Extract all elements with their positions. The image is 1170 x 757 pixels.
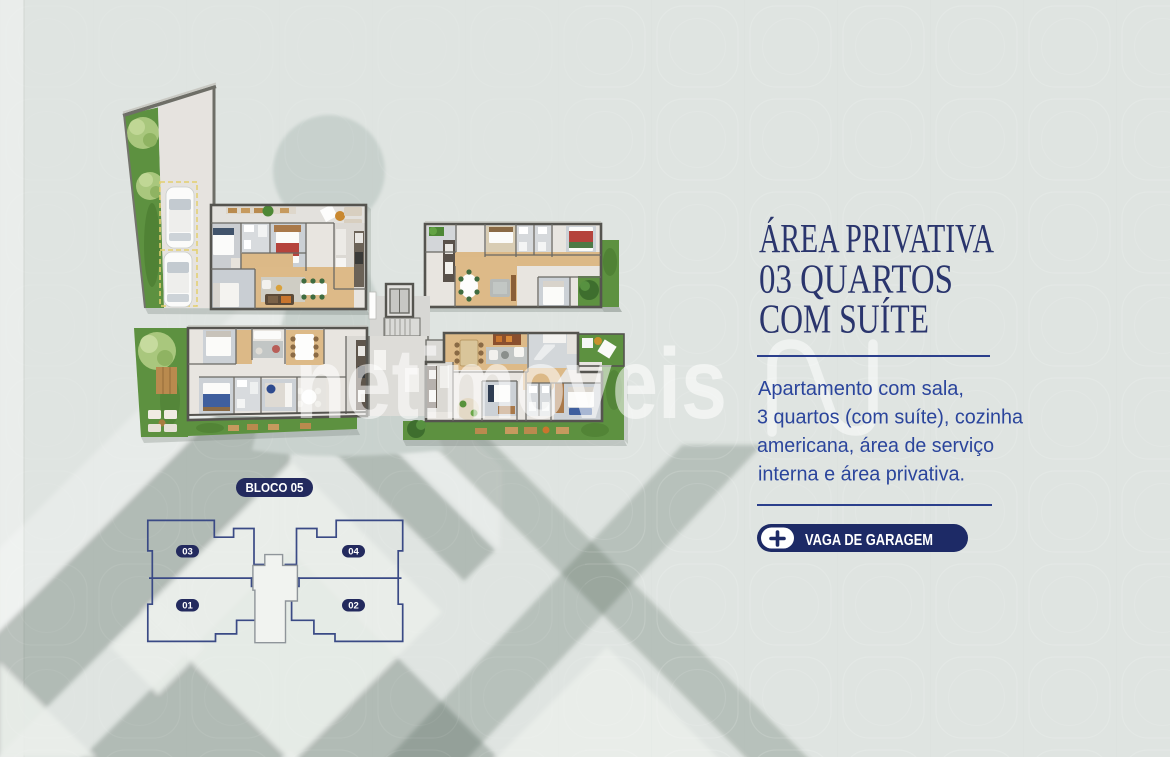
svg-text:americana, área de serviço: americana, área de serviço	[757, 434, 994, 457]
svg-text:interna e área privativa.: interna e área privativa.	[758, 463, 965, 486]
svg-text:04: 04	[348, 547, 359, 558]
svg-text:02: 02	[348, 601, 359, 612]
svg-text:ÁREA PRIVATIVA: ÁREA PRIVATIVA	[759, 215, 994, 261]
svg-text:01: 01	[182, 601, 193, 612]
svg-text:03: 03	[182, 547, 193, 558]
svg-text:BLOCO 05: BLOCO 05	[246, 480, 304, 495]
svg-text:COM SUÍTE: COM SUÍTE	[759, 296, 929, 342]
svg-text:3 quartos (com suíte), cozinha: 3 quartos (com suíte), cozinha	[757, 406, 1024, 429]
svg-text:netimóveis: netimóveis	[295, 328, 727, 440]
svg-text:Apartamento com sala,: Apartamento com sala,	[758, 377, 964, 400]
svg-text:VAGA DE GARAGEM: VAGA DE GARAGEM	[805, 532, 933, 549]
